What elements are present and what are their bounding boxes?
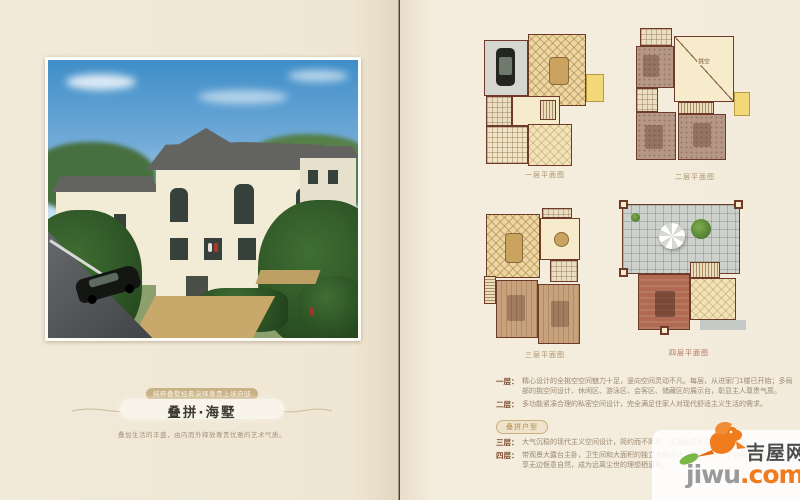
room-family xyxy=(486,214,540,278)
table-icon xyxy=(505,233,523,263)
room-bath xyxy=(486,96,512,126)
jiwu-watermark: 吉屋网 jiwu.com xyxy=(652,430,800,500)
stairs-icon xyxy=(484,276,496,304)
page-title: 叠拼·海墅 xyxy=(120,401,284,421)
window xyxy=(328,170,338,184)
roof xyxy=(297,146,358,158)
garden-hedge xyxy=(298,276,358,336)
room-bedroom xyxy=(496,280,538,338)
arched-window xyxy=(170,188,188,222)
pedestrian xyxy=(208,243,212,252)
room-dining xyxy=(528,124,572,166)
table-icon xyxy=(554,232,569,247)
villa-rendering xyxy=(48,60,358,338)
bed-icon xyxy=(645,125,663,149)
window xyxy=(170,238,188,260)
window xyxy=(238,238,256,260)
villa-photo xyxy=(45,57,361,341)
stone-path xyxy=(133,296,275,338)
stairs-icon xyxy=(540,100,556,120)
room-garage xyxy=(484,40,528,96)
void-label: 挑空 xyxy=(697,57,711,66)
floor-text: 多功能紧凑合理的私密空间设计，完全满足住家人对现代舒适主义生活的需求。 xyxy=(522,400,798,410)
room-loft xyxy=(638,274,690,330)
stairs-icon xyxy=(690,262,720,278)
floor-desc-row: 一层： 精心设计的全挑空空间魅力十足，竖向空间灵动不凡。每层，从进家门1楼已开始… xyxy=(496,377,798,396)
room-master-bedroom xyxy=(538,284,580,344)
room-bedroom xyxy=(678,114,726,160)
floor-label: 四层： xyxy=(496,451,522,470)
window xyxy=(204,238,222,260)
bed-icon xyxy=(507,295,525,321)
table-icon xyxy=(549,57,569,85)
pedestrian xyxy=(310,307,314,316)
roof-terrace xyxy=(622,204,740,274)
floor-desc-row: 二层： 多功能紧凑合理的私密空间设计，完全满足住家人对现代舒适主义生活的需求。 xyxy=(496,400,798,410)
floorplan-level2: 挑空 xyxy=(634,28,756,166)
watermark-com: .com xyxy=(740,460,800,489)
bed-icon xyxy=(643,55,659,77)
watermark-url: jiwu.com xyxy=(686,460,800,489)
stairs-icon xyxy=(678,102,714,114)
room-kitchen xyxy=(486,126,528,164)
room-bedroom xyxy=(636,46,674,88)
plant-icon xyxy=(631,213,640,222)
room-bath xyxy=(550,260,578,282)
floor-label: 二层： xyxy=(496,400,522,410)
plan-caption-level2: 二层平面图 xyxy=(634,172,756,182)
pedestrian xyxy=(214,243,218,252)
balcony xyxy=(586,74,604,102)
bed-icon xyxy=(655,291,675,317)
room-void-over-living: 挑空 xyxy=(674,36,734,102)
car-icon xyxy=(496,48,515,86)
bed-icon xyxy=(551,301,569,327)
room-bath xyxy=(636,88,658,112)
plant-icon xyxy=(691,219,711,239)
balcony xyxy=(542,208,572,218)
floor-label: 一层： xyxy=(496,377,522,396)
plan-caption-level3: 三层平面图 xyxy=(484,350,606,360)
terrace-pillar xyxy=(619,268,628,277)
parasol-icon xyxy=(659,223,685,249)
floor-text: 精心设计的全挑空空间魅力十足，竖向空间灵动不凡。每层，从进家门1楼已开始；多局部… xyxy=(522,377,798,396)
watermark-jiwu: jiwu xyxy=(686,460,740,489)
stone-wall xyxy=(255,270,320,284)
cloud xyxy=(66,74,136,90)
room-bath-suite xyxy=(690,278,736,320)
bed-icon xyxy=(693,123,711,147)
terrace-pillar xyxy=(734,200,743,209)
roof-ledge xyxy=(700,320,746,330)
laundry-balcony xyxy=(640,28,672,46)
cloud xyxy=(198,90,288,104)
roof-gable xyxy=(176,128,236,146)
room-bedroom xyxy=(636,112,676,160)
floorplan-level1 xyxy=(484,34,606,166)
cloud xyxy=(288,70,348,82)
balcony xyxy=(734,92,750,116)
floorplan-level4 xyxy=(622,200,756,340)
room-dining xyxy=(540,218,580,260)
roof xyxy=(52,176,160,192)
page-subtitle: 叠加生活的丰盛，由内而外释放尊贵优雅的艺术气质。 xyxy=(60,429,344,439)
window xyxy=(308,170,318,184)
unit-type-badge: 叠拼户型 xyxy=(496,420,548,434)
floor-label: 三层： xyxy=(496,438,522,448)
floorplan-level3 xyxy=(484,208,606,348)
terrace-pillar xyxy=(660,326,669,335)
terrace-pillar xyxy=(619,200,628,209)
arched-window xyxy=(234,184,254,224)
brochure-left-page: 纯粹叠墅经典演绎尊贵上境府邸 叠拼·海墅 叠加生活的丰盛，由内而外释放尊贵优雅的… xyxy=(0,0,400,500)
plan-caption-level4: 四层平面图 xyxy=(622,348,756,358)
plan-caption-level1: 一层平面图 xyxy=(484,170,606,180)
